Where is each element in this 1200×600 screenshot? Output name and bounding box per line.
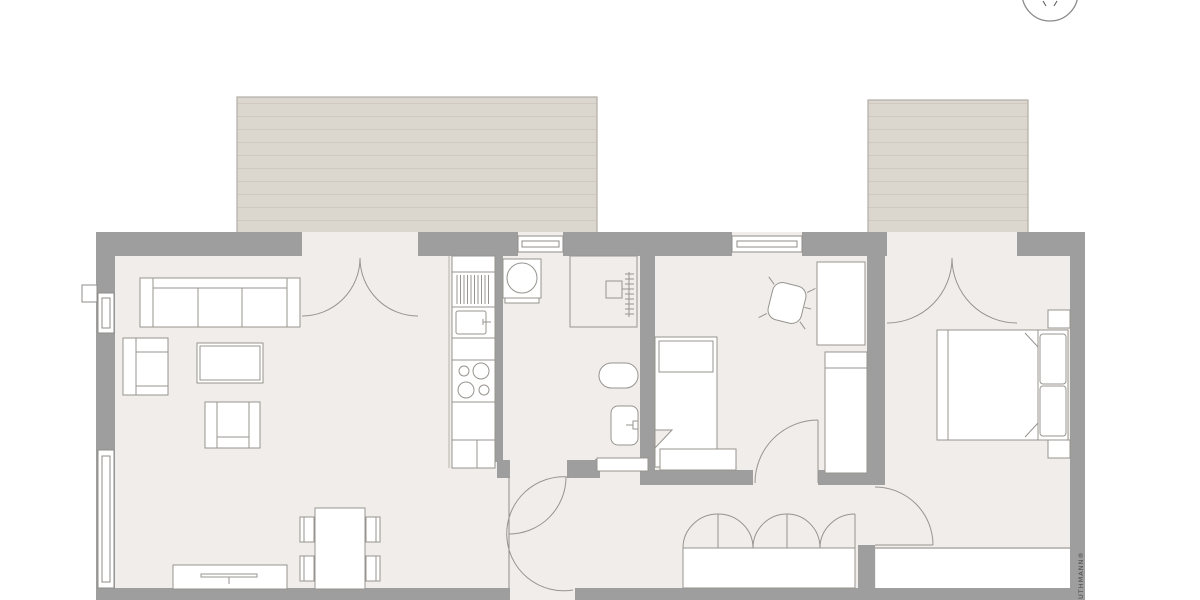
nightstand-bottom	[1048, 440, 1070, 458]
double-bed	[937, 330, 1068, 440]
single-bed	[655, 337, 717, 467]
bathroom-window	[518, 236, 563, 252]
watermark: UTHMANN®	[1077, 551, 1085, 599]
desk	[817, 262, 865, 345]
bed-drawer	[660, 449, 736, 470]
coffee-table	[197, 343, 263, 383]
sofa	[140, 278, 300, 327]
terrace-right	[868, 100, 1028, 235]
kitchen-sink	[456, 311, 491, 334]
kitchen	[449, 256, 495, 468]
dining-table	[315, 508, 365, 589]
armchair-left	[123, 338, 168, 395]
kids-room-window	[732, 236, 802, 252]
floor-plan: UTHMANN®	[0, 0, 1200, 600]
toilet	[599, 363, 638, 388]
tv-lowboard	[173, 565, 287, 589]
facade-niche	[875, 548, 1070, 588]
compass-icon	[1022, 0, 1078, 21]
washing-machine	[503, 259, 541, 303]
bathroom-sliding-door	[595, 458, 648, 471]
living-room-window-tall	[98, 450, 114, 588]
washbasin	[611, 406, 638, 445]
armchair-lower	[205, 402, 260, 448]
nightstand-top	[1048, 310, 1070, 328]
wardrobe	[825, 352, 867, 473]
terrace-left	[237, 97, 597, 235]
